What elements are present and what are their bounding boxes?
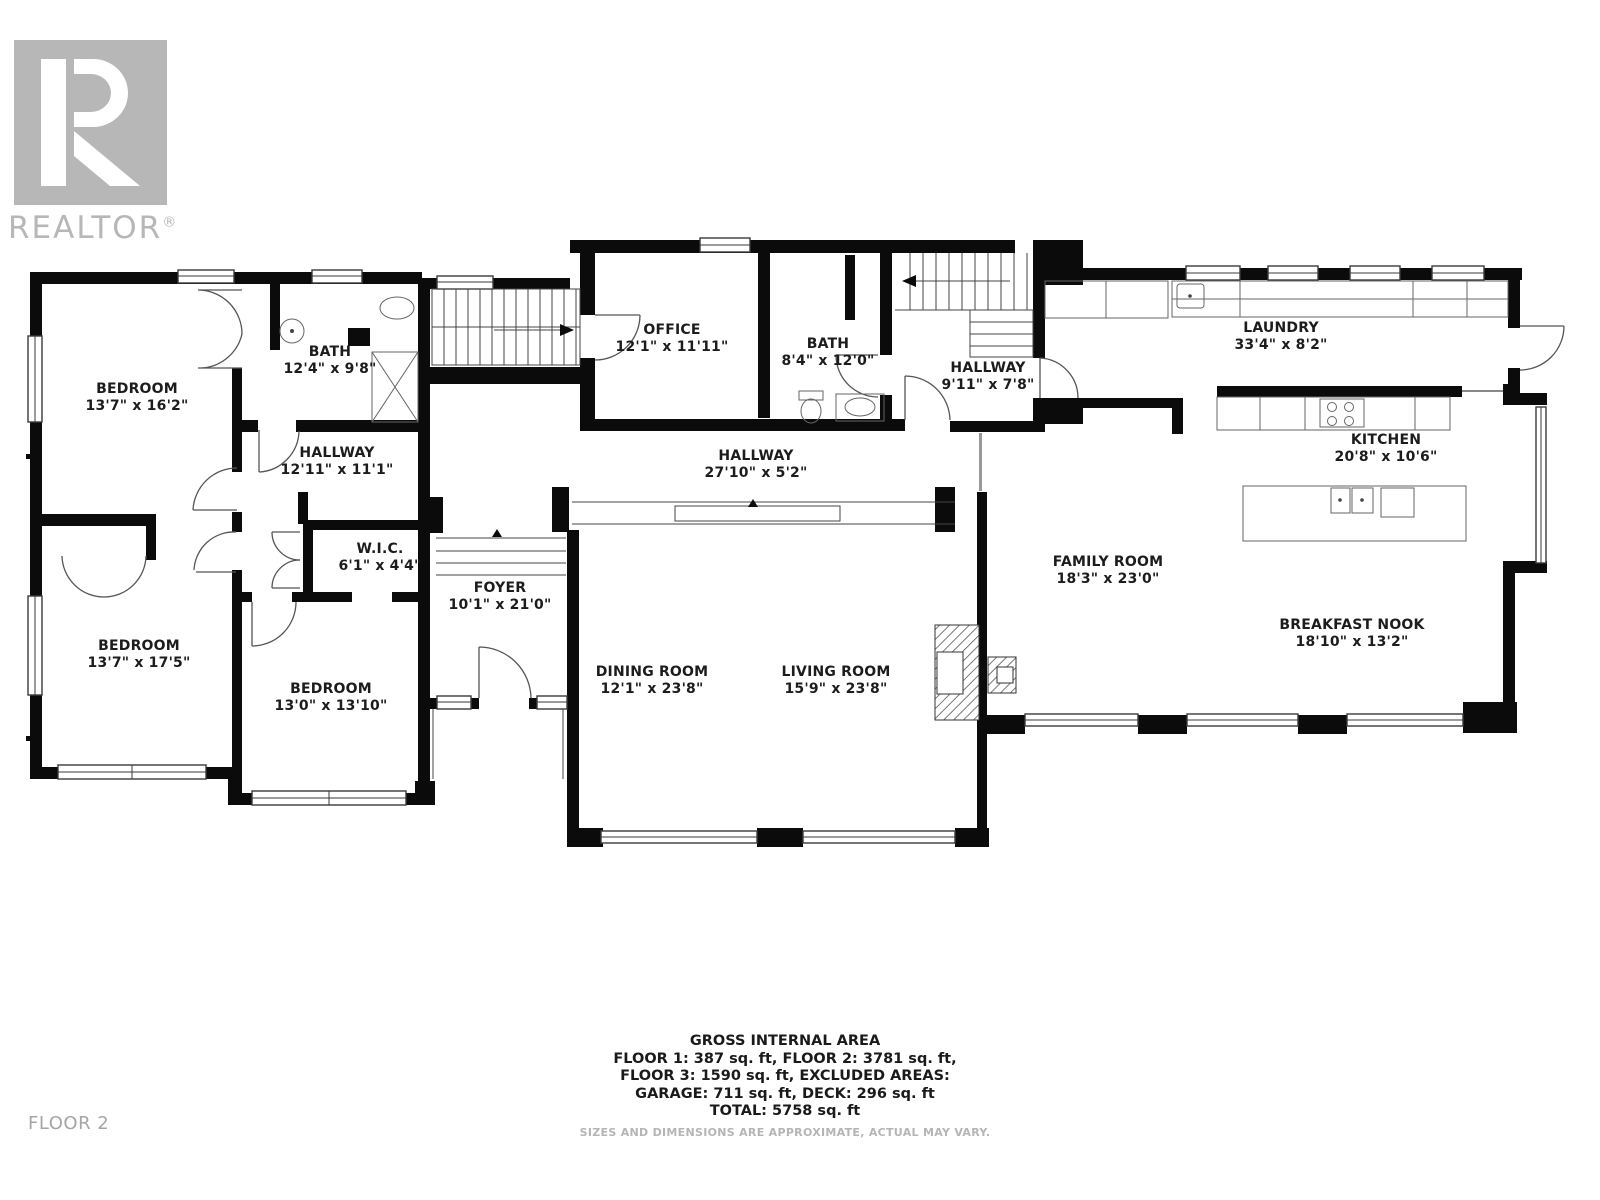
room-label-hallway-small: HALLWAY9'11" x 7'8" — [941, 360, 1034, 394]
area-summary-line2: FLOOR 3: 1590 sq. ft, EXCLUDED AREAS: — [613, 1068, 956, 1086]
room-label-wic: W.I.C.6'1" x 4'4" — [338, 541, 421, 575]
room-label-kitchen: KITCHEN20'8" x 10'6" — [1335, 432, 1438, 466]
room-label-laundry: LAUNDRY33'4" x 8'2" — [1234, 320, 1327, 354]
room-label-dining-room: DINING ROOM12'1" x 23'8" — [596, 664, 709, 698]
disclaimer-text: SIZES AND DIMENSIONS ARE APPROXIMATE, AC… — [580, 1126, 991, 1139]
area-summary-title: GROSS INTERNAL AREA — [613, 1033, 956, 1051]
floor-plan-drawing — [0, 0, 1600, 1200]
area-summary: GROSS INTERNAL AREA FLOOR 1: 387 sq. ft,… — [613, 1033, 956, 1121]
room-label-foyer: FOYER10'1" x 21'0" — [449, 580, 552, 614]
area-summary-line1: FLOOR 1: 387 sq. ft, FLOOR 2: 3781 sq. f… — [613, 1051, 956, 1069]
floor-number-label: FLOOR 2 — [28, 1113, 109, 1134]
room-label-bath-tl: BATH12'4" x 9'8" — [283, 344, 376, 378]
room-label-bedroom-bc: BEDROOM13'0" x 13'10" — [275, 681, 388, 715]
area-summary-total: TOTAL: 5758 sq. ft — [613, 1103, 956, 1121]
room-label-hallway-left: HALLWAY12'11" x 11'1" — [281, 445, 394, 479]
room-label-breakfast-nook: BREAKFAST NOOK18'10" x 13'2" — [1279, 617, 1424, 651]
room-label-bedroom-bl: BEDROOM13'7" x 17'5" — [88, 638, 191, 672]
room-label-family-room: FAMILY ROOM18'3" x 23'0" — [1053, 554, 1163, 588]
room-label-hallway-long: HALLWAY27'10" x 5'2" — [705, 448, 808, 482]
room-label-living-room: LIVING ROOM15'9" x 23'8" — [782, 664, 891, 698]
room-label-bath-center: BATH8'4" x 12'0" — [781, 336, 874, 370]
floor-plan-page: REALTOR® — [0, 0, 1600, 1200]
room-label-bedroom-tl: BEDROOM13'7" x 16'2" — [86, 381, 189, 415]
room-label-office: OFFICE12'1" x 11'11" — [616, 322, 729, 356]
area-summary-line3: GARAGE: 711 sq. ft, DECK: 296 sq. ft — [613, 1086, 956, 1104]
